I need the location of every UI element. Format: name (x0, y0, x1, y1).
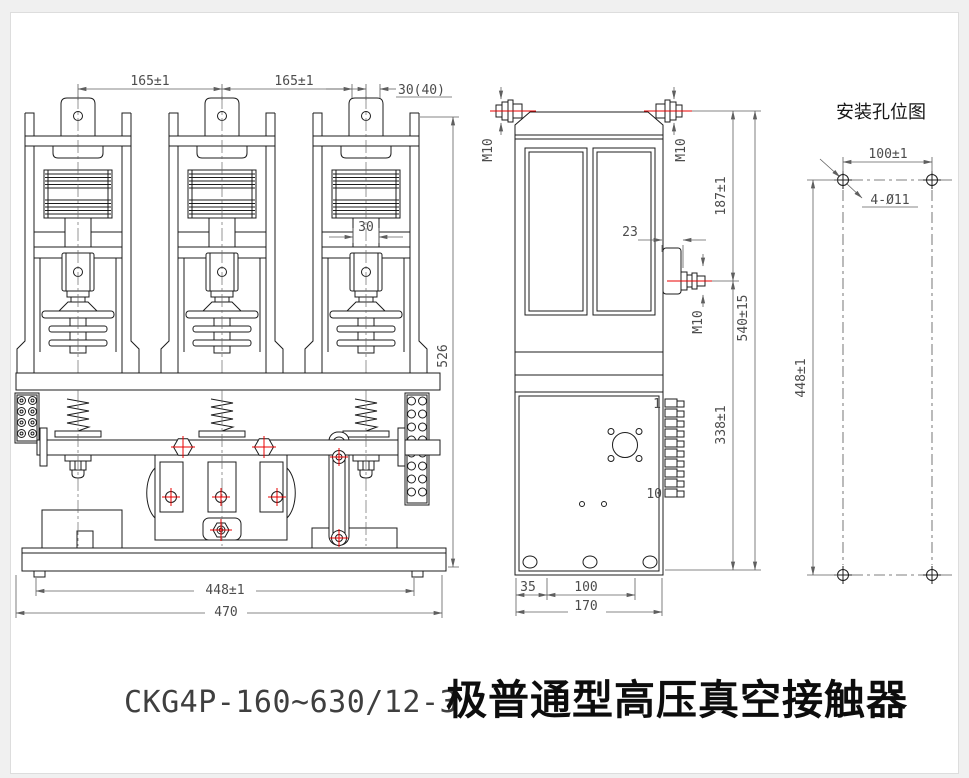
arm-platform (312, 528, 397, 548)
mount-holes-label: 4-Ø11 (870, 193, 909, 208)
m10-top-right-label: M10 (674, 138, 689, 161)
dim-165-left: 165±1 (130, 74, 169, 89)
dim-448-front: 448±1 (205, 583, 244, 598)
m10-top-left-label: M10 (481, 138, 496, 161)
dim-338: 338±1 (714, 405, 729, 444)
drawing-canvas: 165±1 165±1 30(40) 30 526 448±1 470 (0, 0, 969, 778)
dim-540: 540±15 (736, 295, 751, 342)
m10-mid-label: M10 (691, 310, 706, 333)
dim-23: 23 (622, 225, 638, 240)
terminal-10-label: 10 (646, 487, 662, 502)
dim-165-right: 165±1 (274, 74, 313, 89)
terminal-1-label: 1 (653, 397, 661, 412)
dim-170: 170 (574, 599, 597, 614)
dim-30-neck: 30 (358, 220, 374, 235)
cross-bar (37, 440, 440, 455)
dim-526: 526 (436, 344, 451, 367)
dim-448-mount: 448±1 (794, 358, 809, 397)
mount-title: 安装孔位图 (836, 102, 926, 122)
cad-drawing: 165±1 165±1 30(40) 30 526 448±1 470 (0, 0, 969, 778)
product-model: CKG4P-160~630/12-3 (124, 685, 458, 720)
dim-100-side: 100 (574, 580, 597, 595)
dim-100-mount: 100±1 (868, 147, 907, 162)
product-name: 极普通型高压真空接触器 (446, 677, 908, 723)
left-terminal-block (15, 393, 39, 443)
dim-470: 470 (214, 605, 237, 620)
dim-35: 35 (520, 580, 536, 595)
dim-30-40: 30(40) (398, 83, 445, 98)
dim-187: 187±1 (714, 176, 729, 215)
